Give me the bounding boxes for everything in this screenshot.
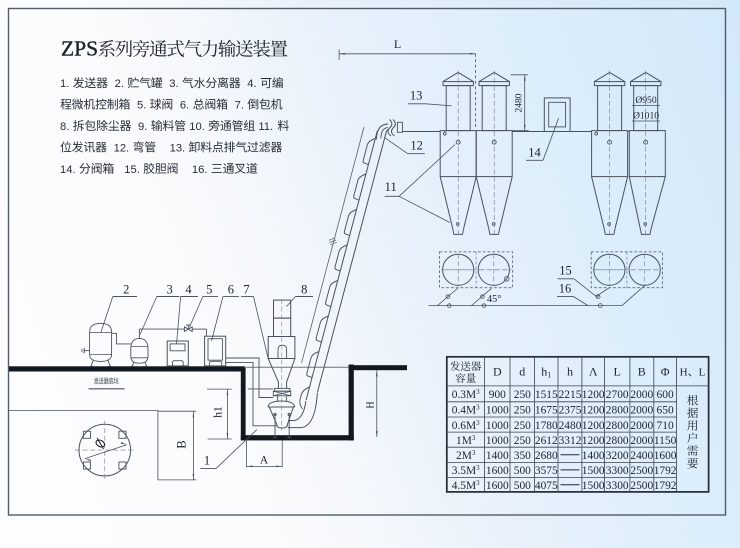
svg-text:2612: 2612 (535, 435, 558, 447)
svg-text:0.6M3: 0.6M3 (452, 419, 480, 432)
svg-text:6: 6 (228, 283, 234, 297)
svg-text:7.: 7. (235, 100, 244, 112)
svg-text:12.: 12. (114, 142, 130, 154)
svg-text:500: 500 (514, 480, 531, 492)
svg-text:2500: 2500 (630, 480, 653, 492)
svg-text:45°: 45° (487, 294, 501, 305)
svg-text:2: 2 (123, 283, 129, 297)
svg-text:8: 8 (301, 283, 307, 297)
svg-text:13.: 13. (170, 142, 186, 154)
svg-text:7: 7 (243, 283, 249, 297)
svg-text:1000: 1000 (486, 420, 509, 432)
svg-text:1600: 1600 (486, 465, 509, 477)
svg-text:D: D (493, 365, 502, 379)
svg-text:5.: 5. (137, 100, 146, 112)
svg-text:600: 600 (657, 389, 674, 401)
svg-text:650: 650 (657, 405, 674, 417)
svg-text:2800: 2800 (606, 405, 629, 417)
svg-text:2700: 2700 (606, 389, 629, 401)
svg-text:1792: 1792 (654, 480, 677, 492)
svg-text:350: 350 (514, 450, 531, 462)
svg-text:1675: 1675 (535, 405, 558, 417)
svg-text:1.: 1. (60, 78, 69, 90)
svg-text:2.: 2. (115, 78, 124, 90)
svg-text:1792: 1792 (654, 465, 677, 477)
svg-text:11: 11 (385, 180, 397, 194)
svg-text:2000: 2000 (630, 389, 653, 401)
svg-text:Ø1010: Ø1010 (633, 111, 659, 122)
svg-text:1200: 1200 (582, 435, 605, 447)
svg-text:ZPS: ZPS (61, 37, 98, 61)
svg-text:3300: 3300 (606, 465, 629, 477)
svg-text:250: 250 (514, 405, 531, 417)
svg-text:9.: 9. (138, 121, 147, 133)
svg-text:1150: 1150 (654, 435, 677, 447)
svg-text:B: B (174, 440, 189, 449)
svg-text:11.: 11. (258, 121, 273, 133)
svg-text:16.: 16. (192, 164, 208, 176)
svg-text:2680: 2680 (535, 450, 558, 462)
svg-text:3.5M3: 3.5M3 (452, 464, 480, 477)
svg-text:1000: 1000 (486, 405, 509, 417)
svg-text:250: 250 (514, 389, 531, 401)
svg-text:h1: h1 (541, 365, 551, 380)
svg-text:1515: 1515 (535, 389, 558, 401)
svg-text:710: 710 (657, 420, 674, 432)
svg-text:3312: 3312 (559, 435, 582, 447)
svg-text:3300: 3300 (606, 480, 629, 492)
svg-text:4: 4 (185, 283, 192, 297)
svg-text:16: 16 (559, 282, 572, 296)
svg-text:1200: 1200 (582, 420, 605, 432)
svg-text:250: 250 (514, 435, 531, 447)
svg-text:h: h (567, 365, 573, 379)
svg-text:4.5M3: 4.5M3 (452, 479, 480, 492)
svg-text:B: B (638, 365, 646, 379)
svg-text:2M3: 2M3 (456, 449, 476, 462)
svg-text:10.: 10. (189, 121, 205, 133)
svg-text:1600: 1600 (654, 450, 677, 462)
svg-text:15.: 15. (124, 164, 140, 176)
svg-text:3575: 3575 (535, 465, 558, 477)
svg-text:A: A (260, 455, 269, 467)
svg-text:2800: 2800 (606, 420, 629, 432)
svg-text:1500: 1500 (582, 480, 605, 492)
svg-text:d: d (519, 365, 525, 379)
svg-text:1200: 1200 (582, 405, 605, 417)
svg-text:1400: 1400 (486, 450, 509, 462)
svg-text:1500: 1500 (582, 465, 605, 477)
svg-text:2800: 2800 (606, 435, 629, 447)
svg-text:2000: 2000 (630, 435, 653, 447)
svg-text:L: L (614, 365, 621, 379)
svg-text:0.4M3: 0.4M3 (452, 404, 480, 417)
svg-text:15: 15 (559, 264, 572, 278)
svg-text:1M3: 1M3 (456, 434, 476, 447)
svg-text:3: 3 (166, 283, 172, 297)
svg-text:2480: 2480 (559, 420, 582, 432)
svg-text:Ø950: Ø950 (635, 95, 657, 106)
svg-text:1400: 1400 (582, 450, 605, 462)
svg-text:250: 250 (514, 420, 531, 432)
svg-text:3.: 3. (169, 78, 178, 90)
svg-text:1600: 1600 (486, 480, 509, 492)
svg-text:2480: 2480 (515, 93, 525, 112)
svg-text:2400: 2400 (630, 450, 653, 462)
svg-text:14: 14 (528, 146, 541, 160)
svg-text:H: H (365, 401, 376, 408)
svg-text:13: 13 (410, 88, 423, 102)
svg-text:1: 1 (204, 453, 210, 467)
svg-text:2500: 2500 (630, 465, 653, 477)
svg-text:1200: 1200 (582, 389, 605, 401)
svg-text:0.3M3: 0.3M3 (452, 388, 480, 401)
svg-text:Λ: Λ (589, 365, 598, 379)
svg-text:3200: 3200 (606, 450, 629, 462)
svg-text:2000: 2000 (630, 420, 653, 432)
svg-text:Φ: Φ (661, 365, 670, 379)
svg-text:14.: 14. (60, 164, 76, 176)
svg-text:4075: 4075 (535, 480, 558, 492)
svg-text:5: 5 (206, 283, 212, 297)
svg-text:2375: 2375 (559, 405, 582, 417)
svg-text:12: 12 (410, 139, 423, 153)
svg-text:500: 500 (514, 465, 531, 477)
svg-text:h1: h1 (212, 406, 224, 418)
svg-text:1780: 1780 (535, 420, 558, 432)
svg-text:1000: 1000 (486, 435, 509, 447)
svg-text:2215: 2215 (559, 389, 582, 401)
svg-text:2000: 2000 (630, 405, 653, 417)
svg-text:4.: 4. (247, 78, 256, 90)
svg-text:8.: 8. (60, 121, 69, 133)
svg-text:L: L (394, 37, 401, 51)
svg-text:6.: 6. (180, 100, 189, 112)
svg-text:H、L: H、L (680, 367, 706, 379)
svg-text:900: 900 (489, 389, 506, 401)
